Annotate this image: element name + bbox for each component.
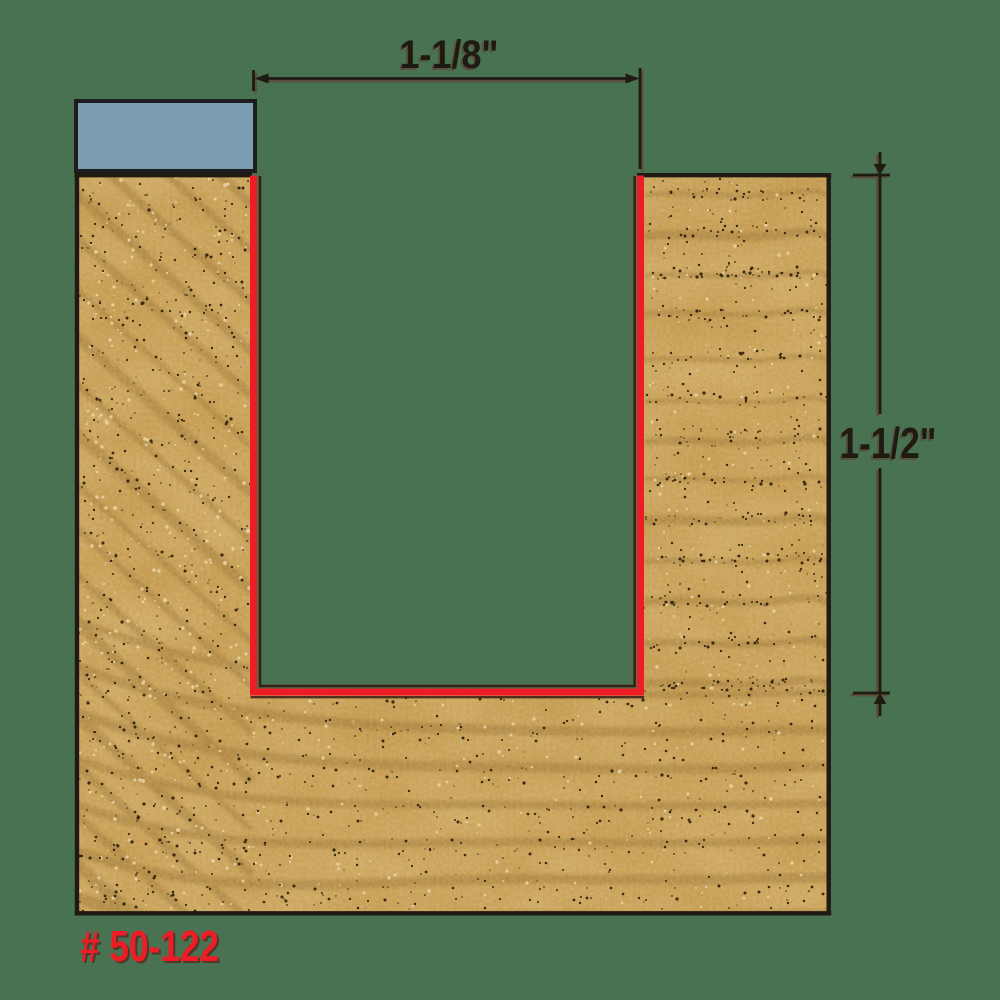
svg-text:# 50-122: # 50-122: [80, 922, 219, 971]
svg-text:1-1/2": 1-1/2": [840, 419, 937, 468]
svg-text:1-1/8": 1-1/8": [400, 33, 499, 77]
